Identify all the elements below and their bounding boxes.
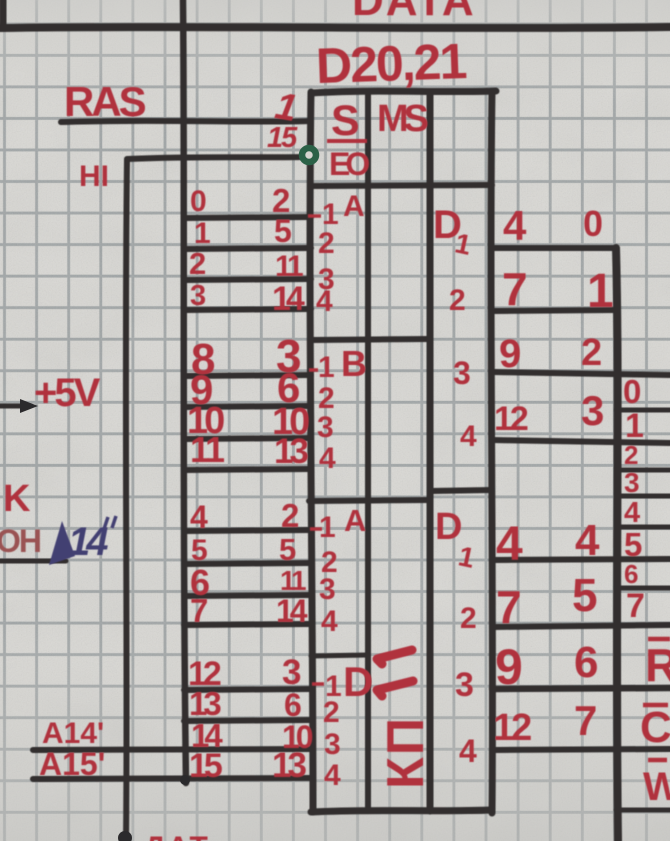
svg-text:3: 3 (190, 280, 206, 312)
svg-text:1: 1 (587, 265, 614, 318)
svg-text:4: 4 (503, 202, 527, 249)
svg-text:2: 2 (460, 602, 477, 635)
svg-text:7: 7 (502, 263, 528, 315)
svg-text:ДАТ: ДАТ (144, 831, 210, 841)
svg-text:7: 7 (574, 697, 597, 744)
svg-text:A: A (344, 503, 366, 538)
svg-text:4: 4 (190, 499, 208, 535)
svg-text:R: R (645, 639, 670, 691)
svg-text:1: 1 (318, 351, 335, 384)
svg-text:14: 14 (276, 593, 308, 629)
svg-text:3: 3 (453, 355, 471, 391)
svg-text:2: 2 (323, 696, 340, 729)
svg-text:MS: MS (377, 98, 428, 140)
svg-text:5: 5 (624, 526, 642, 563)
svg-text:W: W (643, 765, 670, 809)
svg-text:4: 4 (624, 497, 640, 529)
svg-text:2: 2 (581, 332, 602, 374)
svg-text:5: 5 (274, 213, 292, 249)
svg-text:6: 6 (284, 687, 302, 723)
svg-text:14: 14 (68, 520, 108, 564)
svg-text:7: 7 (496, 581, 522, 633)
svg-text:4: 4 (316, 285, 333, 318)
svg-text:RAS: RAS (64, 78, 146, 125)
svg-text:5: 5 (572, 569, 598, 621)
svg-text:4: 4 (324, 759, 341, 792)
svg-text:DATA: DATA (352, 0, 476, 25)
svg-text:C: C (640, 703, 670, 752)
svg-text:4: 4 (321, 605, 338, 638)
svg-text:2: 2 (189, 246, 206, 281)
svg-text:0: 0 (190, 185, 207, 218)
svg-text:4: 4 (319, 442, 336, 475)
svg-text:12: 12 (493, 707, 531, 749)
svg-text:K: K (3, 478, 31, 520)
svg-text:4: 4 (460, 420, 477, 453)
svg-text:3: 3 (455, 666, 474, 704)
svg-text:7: 7 (626, 587, 645, 625)
svg-text:15: 15 (267, 122, 298, 154)
svg-text:3: 3 (317, 411, 334, 444)
svg-text:13: 13 (274, 432, 308, 471)
svg-text:6: 6 (624, 559, 638, 589)
svg-text:2: 2 (318, 227, 335, 260)
svg-text:5: 5 (279, 532, 296, 567)
svg-text:11: 11 (275, 250, 303, 283)
svg-text:2: 2 (281, 497, 299, 534)
svg-text:6: 6 (574, 638, 598, 687)
svg-text:HI: HI (79, 160, 109, 193)
svg-text:D20,21: D20,21 (315, 33, 467, 94)
svg-text:0: 0 (583, 203, 603, 244)
svg-text:15: 15 (189, 747, 222, 785)
svg-text:0: 0 (623, 373, 641, 410)
svg-text:1: 1 (319, 511, 336, 544)
svg-text:4: 4 (575, 516, 600, 565)
svg-text:ОН: ОН (0, 523, 40, 559)
svg-text:3: 3 (624, 467, 640, 498)
svg-text:4: 4 (496, 518, 523, 571)
svg-text:B: B (341, 343, 367, 384)
svg-text:D: D (435, 506, 462, 548)
svg-text:11: 11 (190, 429, 225, 470)
svg-text:A: A (343, 190, 365, 223)
svg-text:2: 2 (624, 440, 638, 470)
svg-text:3: 3 (581, 387, 604, 434)
svg-text:КП: КП (377, 716, 435, 789)
svg-text:9: 9 (499, 332, 521, 376)
svg-text:2: 2 (449, 284, 466, 317)
svg-text:9: 9 (495, 639, 523, 695)
svg-text:A15': A15' (39, 746, 105, 782)
svg-text:3: 3 (324, 728, 341, 761)
svg-text:EO: EO (329, 146, 369, 182)
svg-text:S: S (331, 97, 360, 145)
svg-text:13: 13 (272, 746, 306, 785)
svg-text:4: 4 (459, 733, 477, 769)
svg-text:3: 3 (319, 573, 336, 606)
svg-text:+5V: +5V (34, 371, 101, 415)
svg-text:11: 11 (280, 565, 306, 596)
svg-text:12: 12 (494, 400, 528, 438)
svg-text:D: D (343, 658, 373, 705)
svg-text:7: 7 (190, 592, 208, 629)
